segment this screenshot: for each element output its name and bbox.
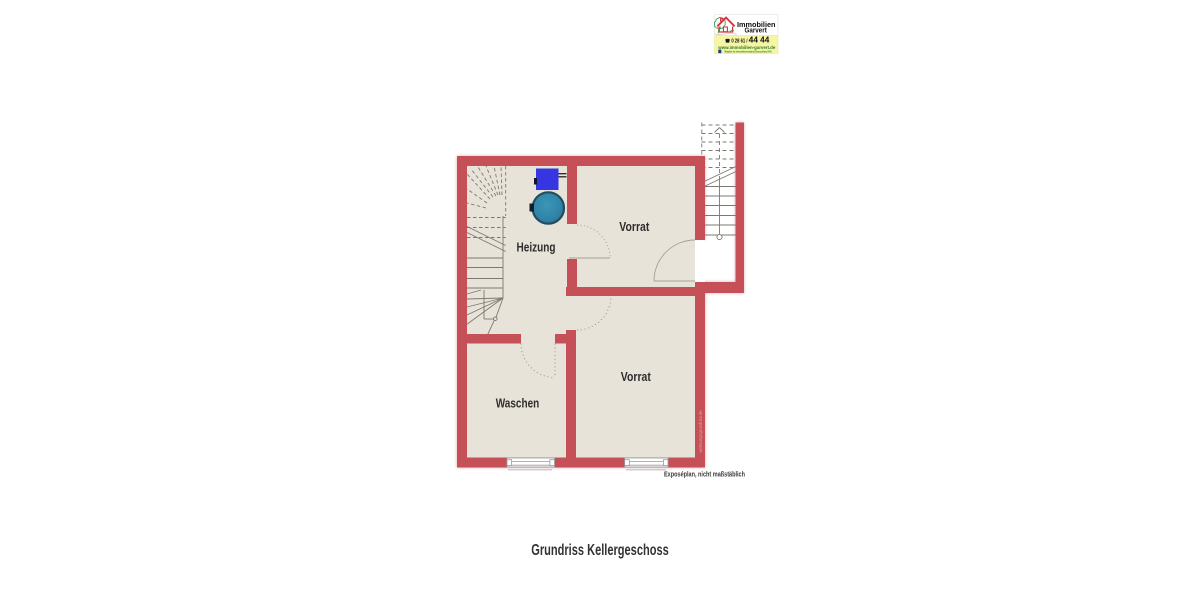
svg-text:Mitglied im Immobilienverband: Mitglied im Immobilienverband Deutschlan… — [725, 50, 772, 54]
svg-text:Vorrat: Vorrat — [621, 369, 652, 384]
svg-text:☎ 0 28 61 /: ☎ 0 28 61 / — [725, 38, 748, 44]
svg-text:Garvert: Garvert — [745, 25, 768, 34]
svg-text:Heizung: Heizung — [517, 239, 556, 254]
svg-text:Exposéplan, nicht maßstäblich: Exposéplan, nicht maßstäblich — [664, 470, 745, 479]
svg-text:Waschen: Waschen — [496, 395, 540, 410]
svg-text:Vorrat: Vorrat — [619, 219, 650, 234]
svg-text:44 44: 44 44 — [749, 36, 770, 45]
svg-text:wohnungsgrundriss.de: wohnungsgrundriss.de — [698, 410, 703, 453]
svg-text:Grundriss Kellergeschoss: Grundriss Kellergeschoss — [531, 542, 669, 559]
